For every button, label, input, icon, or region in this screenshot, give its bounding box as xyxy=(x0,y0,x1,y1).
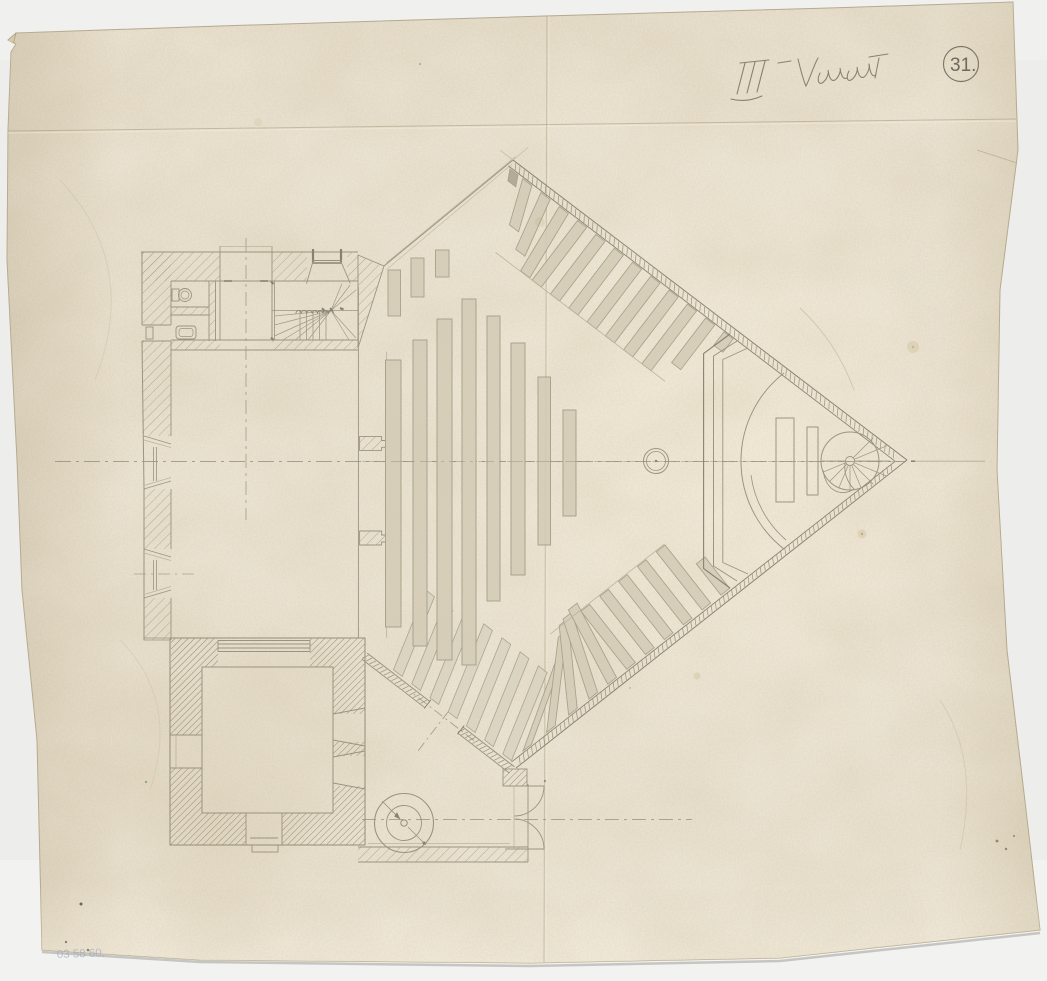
svg-text:31.: 31. xyxy=(950,55,976,76)
svg-text:03 58 60.: 03 58 60. xyxy=(57,947,105,961)
